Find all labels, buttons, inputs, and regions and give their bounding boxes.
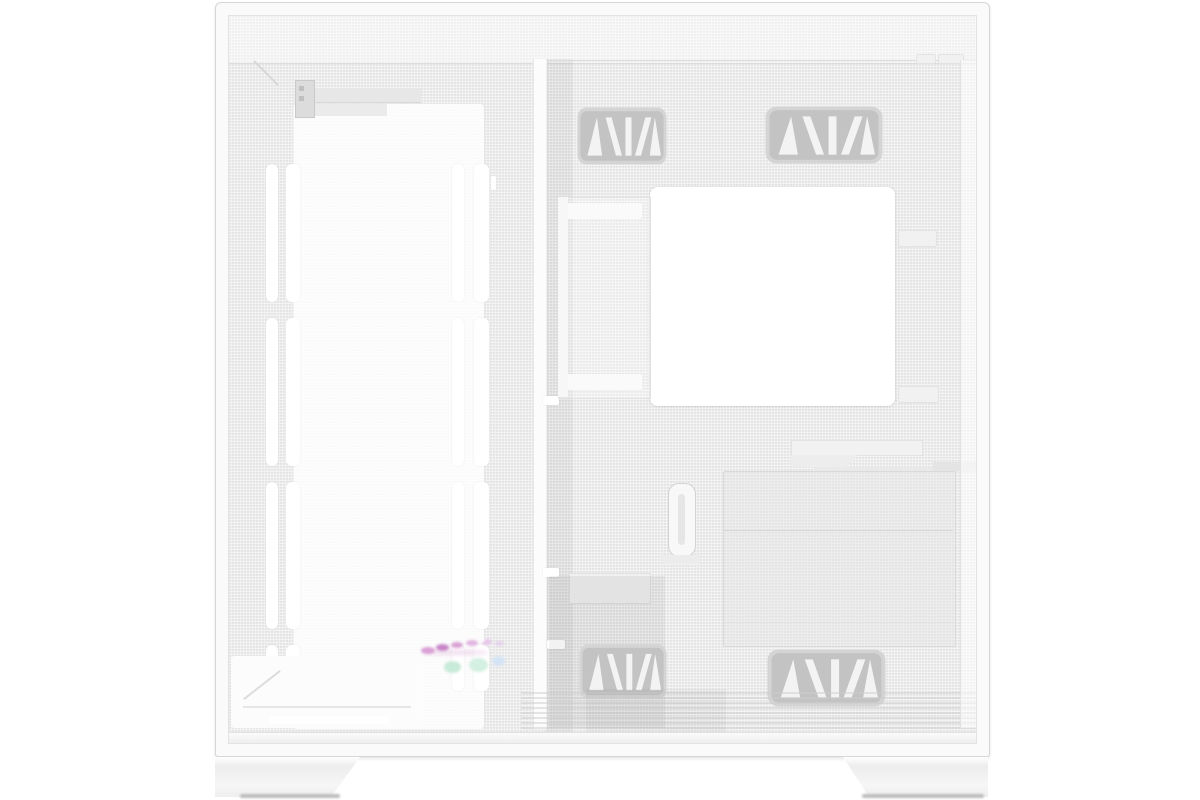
fan-rail-segment	[474, 482, 489, 629]
rgb-glow-blue	[492, 656, 505, 666]
foot-shadow-right	[862, 794, 984, 798]
bottom-rail-shade	[586, 689, 726, 737]
product-photo-canvas: { "scene": { "type": "product-photo", "s…	[0, 0, 1200, 800]
rear-tab	[898, 230, 937, 247]
rear-tab	[898, 386, 939, 403]
fan-rail-segment	[266, 482, 278, 629]
rgb-glow-dot	[466, 640, 478, 646]
case-foot-left	[215, 757, 360, 797]
fan-rail-segment	[286, 482, 300, 629]
fan-rail-segment	[474, 318, 489, 465]
top-frame-band	[229, 16, 976, 64]
case-foot-right	[843, 757, 988, 797]
pc-case	[215, 2, 990, 757]
connector-pin	[299, 96, 304, 101]
support-bar	[791, 440, 923, 456]
bracket-bottom-bar	[562, 374, 642, 390]
fan-rail-segment	[286, 164, 300, 302]
vent-cutout-top-left	[577, 107, 667, 165]
bracket-line	[243, 706, 411, 708]
fan-rail-right-inner	[452, 164, 464, 691]
fan-rail-left-inner	[286, 164, 300, 691]
cage-seam-lower	[724, 622, 953, 623]
top-rear-tab	[916, 54, 936, 64]
rear-top-seam	[547, 60, 976, 61]
fan-rail-segment	[286, 318, 300, 465]
cpu-cutout-window	[650, 187, 895, 406]
fan-rail-segment	[266, 318, 278, 465]
fan-rail-right-outer	[474, 164, 489, 691]
bracket-white-bar	[269, 716, 389, 724]
rgb-glow-dot	[495, 641, 504, 646]
slot-opening	[678, 494, 685, 545]
cable-header-bar2	[315, 104, 387, 116]
fan-rail-segment	[266, 164, 278, 302]
motherboard-tray-edge	[533, 59, 547, 729]
pcie-slot-bracket	[668, 483, 696, 557]
chamfer-corner-line	[253, 60, 278, 85]
fan-rail-segment	[474, 164, 489, 302]
cable-header-bar	[315, 88, 421, 103]
rear-frame-strip	[961, 60, 976, 728]
fan-rail-segment	[452, 482, 464, 629]
bracket-edge-strip	[558, 197, 568, 397]
rgb-glow-dot	[436, 644, 449, 651]
cage-seam	[724, 530, 953, 531]
bracket-top-bar	[562, 203, 642, 219]
foot-shadow-left	[240, 794, 340, 798]
fan-rail-segment	[452, 164, 464, 302]
bottom-frame-strip	[229, 732, 976, 743]
front-io-connector	[295, 80, 315, 118]
rgb-glow-dot	[451, 642, 463, 648]
rgb-glow-dot	[421, 647, 435, 654]
fan-rail-segment	[452, 318, 464, 465]
mesh-side-panel	[229, 16, 976, 743]
thumbscrew-highlight	[491, 176, 496, 190]
fan-rail-left-outer	[266, 164, 278, 691]
support-bar-wedge	[791, 455, 857, 467]
rgb-sparkle	[479, 638, 485, 642]
cable-clip	[543, 396, 559, 405]
bracket-foot	[662, 555, 700, 564]
rgb-glow-mint	[444, 661, 461, 673]
side-bracket	[558, 197, 651, 399]
rgb-glow-mint	[469, 658, 488, 672]
connector-pin	[299, 86, 304, 91]
vent-cutout-top-right	[765, 106, 883, 164]
drive-cage	[723, 471, 956, 647]
